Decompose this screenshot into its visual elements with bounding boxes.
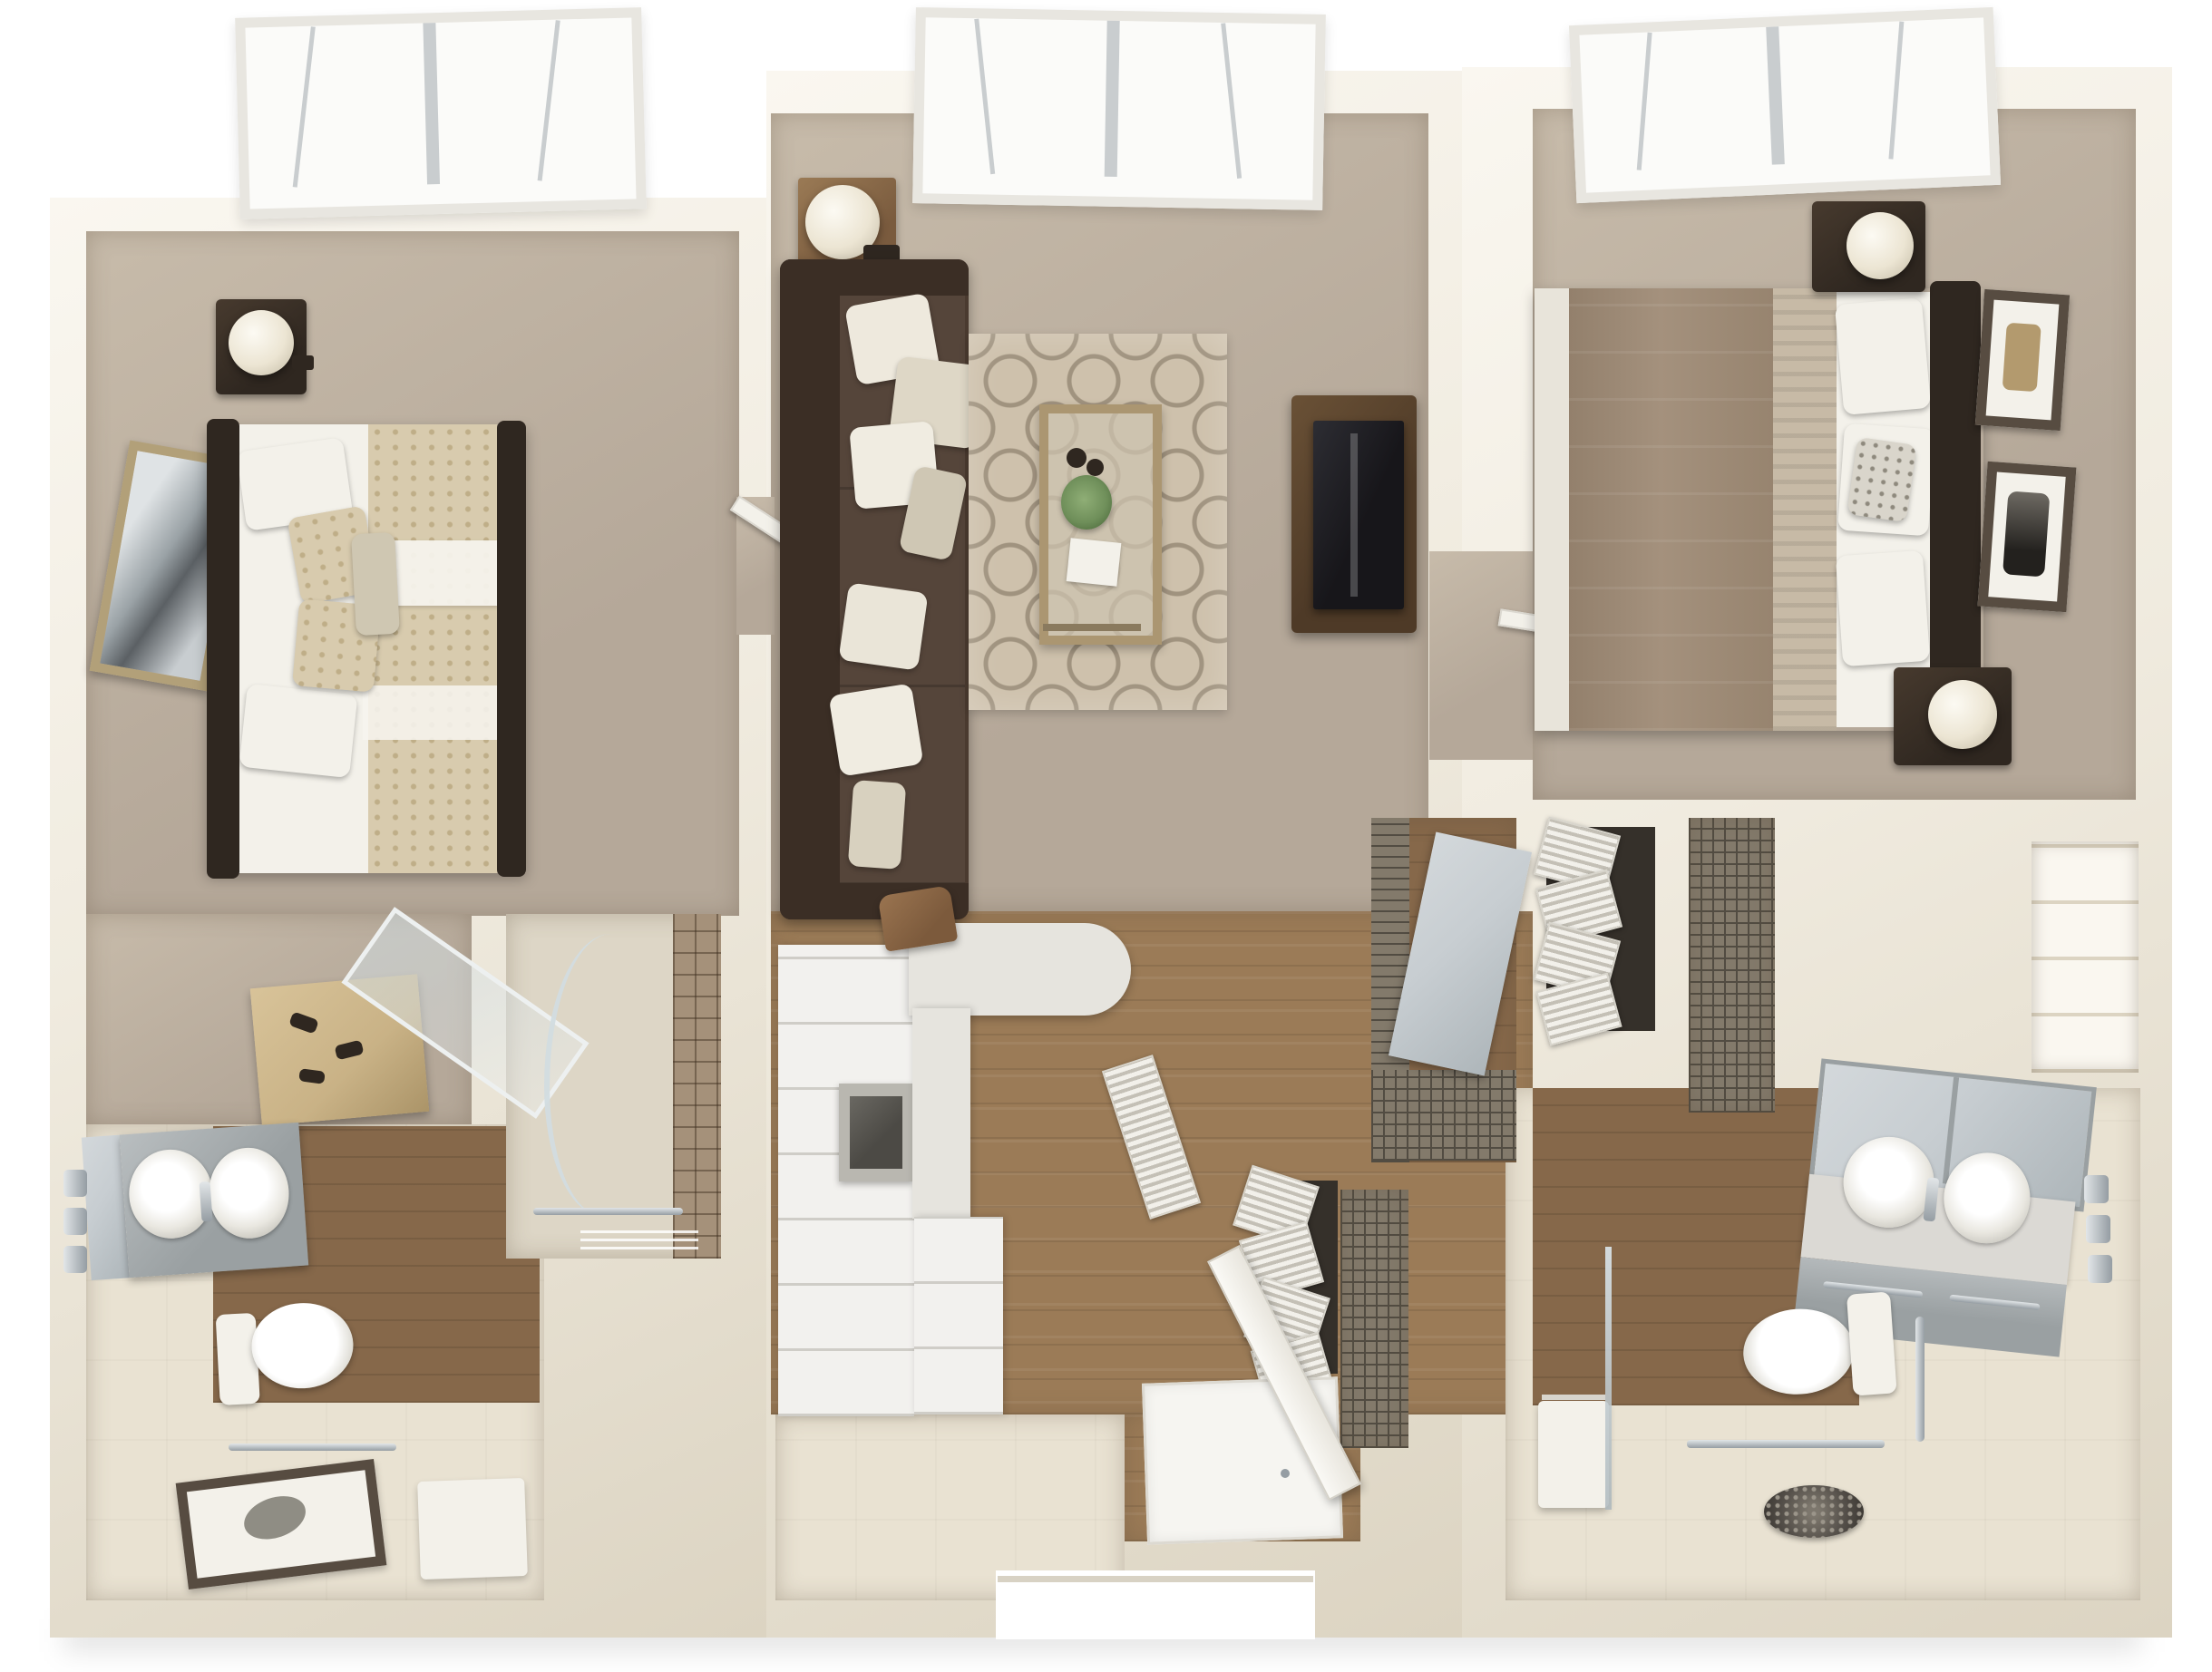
front-door-threshold xyxy=(998,1576,1313,1582)
coffee-table-plant xyxy=(1061,475,1112,530)
bathroom1-toilet xyxy=(215,1300,361,1409)
bathroom1-towel-hook xyxy=(63,1246,87,1273)
vanity-towel-bar xyxy=(1949,1295,2040,1310)
kitchen-bar-chair xyxy=(878,885,959,952)
window-mullion xyxy=(423,23,440,184)
bathroom2-towel-hook xyxy=(2088,1255,2112,1283)
window-mullion xyxy=(1888,22,1904,160)
coffee-table-candle xyxy=(1087,459,1104,476)
living-room-window xyxy=(912,7,1326,210)
bathroom2-towel-hook xyxy=(2084,1175,2109,1203)
toilet-bowl xyxy=(249,1300,356,1391)
bed2-accent-pillow-trellis xyxy=(1847,437,1916,522)
bathroom2-shower-drain xyxy=(1764,1485,1864,1538)
sofa-throw-pillow xyxy=(838,582,928,670)
kitchen-oven xyxy=(839,1084,913,1181)
window-mullion xyxy=(538,20,560,180)
coffee-table-candle xyxy=(1067,448,1087,468)
bathroom2-grab-bar xyxy=(1915,1317,1925,1442)
floor-picture-art xyxy=(239,1489,312,1547)
bed2-duvet xyxy=(1569,288,1773,731)
framed-art-subject xyxy=(2002,491,2050,577)
bathroom2-shower-bench xyxy=(1538,1401,1609,1508)
framed-art-subject xyxy=(2002,323,2041,392)
bedroom2-bed xyxy=(1535,288,1983,731)
floor-plan-render xyxy=(0,0,2212,1672)
shower1-seat xyxy=(417,1478,528,1580)
closet1-wire-shelves-back xyxy=(1371,1070,1516,1161)
bathroom1-towel-bar xyxy=(229,1444,396,1451)
kitchen-base-cabinet xyxy=(914,1217,1003,1414)
toilet-tank xyxy=(1847,1291,1897,1395)
flat-screen-tv xyxy=(1313,421,1404,609)
bed1-lumbar-pillow xyxy=(351,532,400,636)
bedroom2-table-lamp-top xyxy=(1847,212,1914,279)
bed1-comforter xyxy=(368,424,497,873)
kitchen-counter-return xyxy=(912,1008,970,1219)
bedroom1-window xyxy=(235,7,647,219)
bed1-headboard xyxy=(207,419,239,879)
bathroom1-towel-hook xyxy=(63,1208,87,1235)
bathroom2-toilet xyxy=(1739,1289,1901,1407)
bedroom1-table-lamp-top xyxy=(229,310,294,375)
bathroom2-glass-partition xyxy=(1605,1247,1612,1510)
oven-glass xyxy=(850,1096,902,1169)
closet2-wire-shelving xyxy=(1689,818,1775,1113)
bedroom2-framed-art-top xyxy=(1975,289,2070,431)
hall-closet-wire-shelving xyxy=(1340,1190,1408,1448)
window-mullion xyxy=(1221,23,1242,179)
bathroom2-towel-bar xyxy=(1687,1440,1885,1448)
bathroom2-shelf-edge xyxy=(1542,1395,1605,1400)
linen-closet-shelves xyxy=(2032,841,2139,1073)
bedroom1-alarm-clock xyxy=(292,355,314,370)
sofa-throw-pillow xyxy=(829,683,924,776)
coffee-table-tray xyxy=(1067,538,1122,587)
window-mullion xyxy=(293,26,316,187)
window-mullion xyxy=(1637,33,1652,170)
window-mullion xyxy=(1105,21,1120,177)
bed2-pillow-white xyxy=(1836,550,1930,666)
window-mullion xyxy=(974,19,995,175)
tv-screen-glare xyxy=(1350,433,1358,597)
bedroom1-bed xyxy=(207,424,526,873)
bed1-pillow-white xyxy=(239,684,358,778)
bed1-white-throw xyxy=(363,685,499,740)
sofa-back-cushions xyxy=(780,259,840,919)
bed2-foot-sheet xyxy=(1535,288,1569,731)
sofa-throw-pillow xyxy=(848,780,906,870)
shower1-tile-wall xyxy=(673,914,721,1259)
entry-door-handle xyxy=(1281,1469,1290,1478)
bed2-pillow-white xyxy=(1835,297,1931,415)
bathroom1-vanity xyxy=(82,1123,308,1280)
window-mullion xyxy=(1766,26,1785,164)
toilet-bowl xyxy=(1740,1306,1856,1398)
bathroom2-towel-hook xyxy=(2086,1215,2110,1243)
bedroom2-doorway-opening xyxy=(1429,551,1533,760)
bedroom2-framed-art-bottom xyxy=(1978,462,2077,612)
bed1-footboard xyxy=(497,421,526,877)
coffee-table-shelf-bar xyxy=(1043,624,1141,631)
shower1-wire-caddy xyxy=(580,1226,698,1249)
bedroom2-table-lamp-bottom xyxy=(1928,680,1997,749)
bathroom1-towel-hook xyxy=(63,1170,87,1197)
bed2-folded-duvet-edge xyxy=(1773,288,1837,731)
shower1-grab-bar xyxy=(533,1208,683,1215)
sofa-armrest xyxy=(780,259,969,296)
bedroom2-window xyxy=(1569,7,2001,203)
